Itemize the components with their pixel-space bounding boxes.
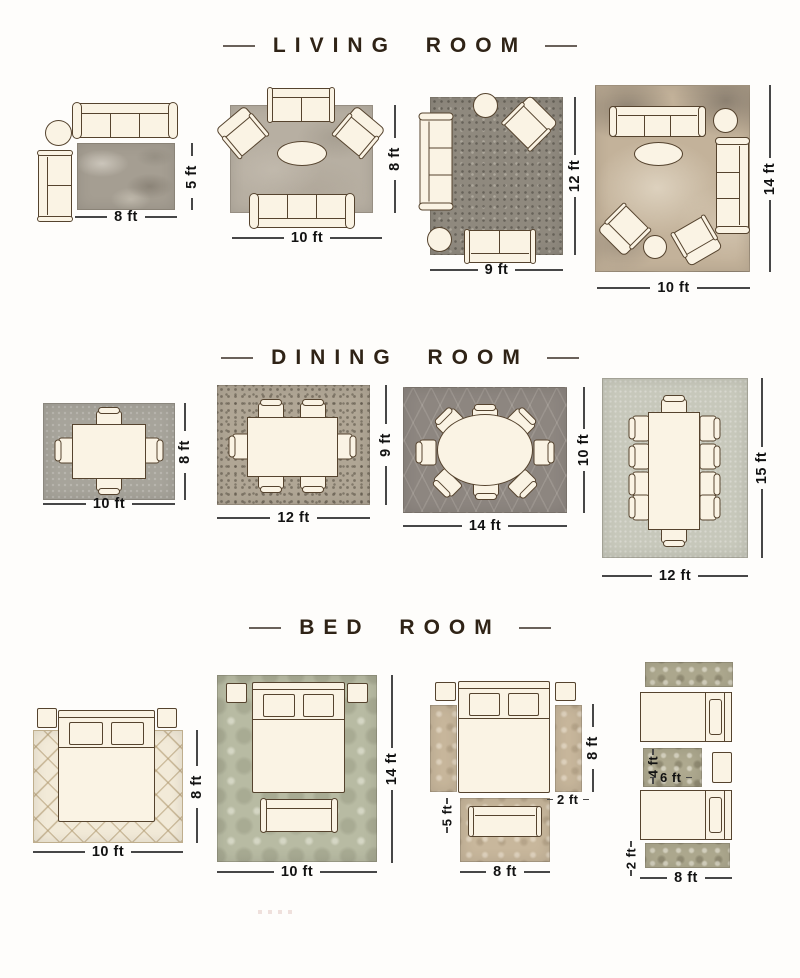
queen-bed <box>58 710 155 822</box>
bench <box>260 799 338 832</box>
pillow <box>111 722 145 745</box>
dining-chair <box>700 444 717 470</box>
height-dimension-label: 9 ft <box>377 385 395 505</box>
rug-size-guide: LIVING ROOM 8 ft 5 ft 10 ft 8 ft <box>0 0 800 978</box>
watermark <box>258 910 292 914</box>
nightstand <box>347 683 368 703</box>
rug-living-8x5 <box>77 143 175 210</box>
dining-chair <box>336 434 353 460</box>
dining-table <box>247 417 338 477</box>
width-dimension-label: 10 ft <box>232 230 382 246</box>
pillow <box>709 797 723 833</box>
height-dimension-label: 15 ft <box>753 378 771 558</box>
foot-rug-height-dimension-label: 5 ft <box>438 798 456 862</box>
pillow <box>469 693 500 716</box>
pillow <box>69 722 103 745</box>
dining-chair <box>700 495 717 521</box>
nightstand <box>37 708 57 728</box>
round-side-table <box>643 235 667 259</box>
nightstand <box>555 682 576 701</box>
height-dimension-label: 14 ft <box>383 675 401 863</box>
dining-table <box>72 424 146 479</box>
width-dimension-label: 10 ft <box>43 496 175 512</box>
width-dimension-label: 12 ft <box>217 510 370 526</box>
height-dimension-label: 12 ft <box>566 97 584 255</box>
dining-room-title: DINING ROOM <box>271 346 529 370</box>
title-dash-right <box>519 627 551 629</box>
width-dimension-label: 10 ft <box>33 844 183 860</box>
dining-chair <box>534 440 551 466</box>
nightstand <box>157 708 177 728</box>
pillow <box>303 694 335 717</box>
title-dash-left <box>221 357 253 359</box>
width-dimension-label: 9 ft <box>430 262 563 278</box>
height-dimension-label: 5 ft <box>183 143 201 210</box>
pillow <box>263 694 295 717</box>
runner-rug <box>430 705 457 792</box>
loveseat-sofa <box>464 230 536 263</box>
queen-bed <box>458 681 550 793</box>
three-seat-sofa <box>420 113 453 211</box>
dining-chair <box>633 416 650 442</box>
dining-chair <box>420 440 437 466</box>
dining-chair <box>633 444 650 470</box>
nightstand <box>712 752 732 783</box>
twin-bed <box>640 692 732 742</box>
width-dimension-label: 14 ft <box>403 518 567 534</box>
width-dimension-label: 8 ft <box>460 864 550 880</box>
chaise-sofa <box>38 150 72 222</box>
height-dimension-label: 8 ft <box>176 403 194 500</box>
runner-width-dimension-label: 2 ft <box>547 792 591 807</box>
round-side-table <box>713 108 738 133</box>
queen-bed <box>252 682 345 793</box>
height-dimension-label: 14 ft <box>761 85 779 272</box>
dining-table <box>648 412 700 530</box>
three-seat-sofa <box>716 137 749 234</box>
runner-rug <box>555 705 582 792</box>
runner-rug <box>645 662 733 687</box>
three-seat-sofa <box>609 106 706 137</box>
bench <box>468 806 542 837</box>
runner-length-dimension-label: 8 ft <box>584 704 602 792</box>
oval-coffee-table <box>634 142 683 166</box>
pillow <box>709 699 723 735</box>
title-dash-left <box>249 627 281 629</box>
title-dash-right <box>545 45 577 47</box>
living-room-title: LIVING ROOM <box>273 34 527 58</box>
width-dimension-label: 10 ft <box>217 864 377 880</box>
loveseat-sofa <box>267 88 335 122</box>
round-side-table <box>473 93 498 118</box>
three-seat-sofa <box>73 103 177 138</box>
round-side-table <box>427 227 452 252</box>
twin-bed <box>640 790 732 840</box>
oval-coffee-table <box>277 141 327 166</box>
runner-height-dimension-label: 2 ft <box>622 841 640 873</box>
height-dimension-label: 8 ft <box>386 105 404 213</box>
title-dash-right <box>547 357 579 359</box>
width-dimension-label: 8 ft <box>640 870 732 886</box>
section-title-living-room: LIVING ROOM <box>0 34 800 58</box>
nightstand <box>226 683 247 703</box>
bed-room-title: BED ROOM <box>299 616 501 640</box>
height-dimension-label: 10 ft <box>575 387 593 513</box>
dining-chair <box>700 416 717 442</box>
accent-rug-width-dimension-label: 6 ft <box>650 770 706 785</box>
width-dimension-label: 10 ft <box>597 280 750 296</box>
round-side-table <box>45 120 72 146</box>
width-dimension-label: 8 ft <box>75 209 177 225</box>
width-dimension-label: 12 ft <box>602 568 748 584</box>
oval-dining-table <box>437 414 533 486</box>
three-seat-sofa <box>250 194 354 228</box>
runner-rug <box>645 843 730 868</box>
height-dimension-label: 8 ft <box>188 730 206 843</box>
section-title-dining-room: DINING ROOM <box>0 346 800 370</box>
pillow <box>508 693 539 716</box>
dining-chair <box>633 495 650 521</box>
section-title-bed-room: BED ROOM <box>0 616 800 640</box>
nightstand <box>435 682 456 701</box>
title-dash-left <box>223 45 255 47</box>
